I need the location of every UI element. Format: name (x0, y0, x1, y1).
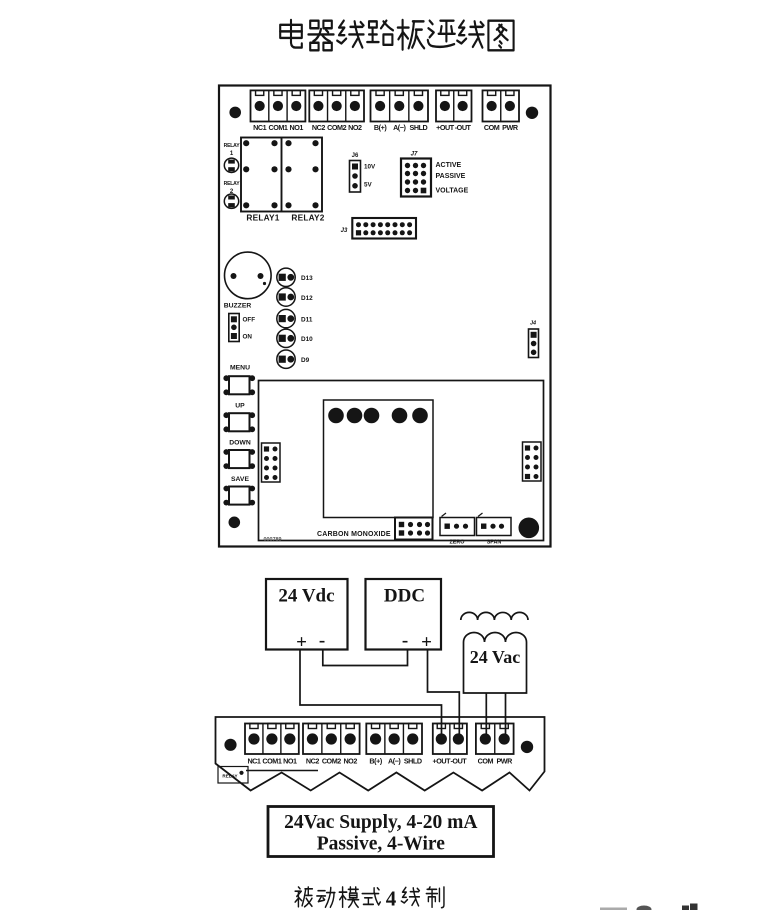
svg-text:24 Vac: 24 Vac (470, 647, 521, 667)
svg-text:-: - (319, 630, 325, 651)
svg-text:+: + (421, 632, 432, 653)
svg-text:A(−): A(−) (388, 757, 401, 766)
svg-text:RELAY: RELAY (222, 774, 237, 779)
svg-text:BUZZER: BUZZER (224, 303, 252, 310)
svg-text:SPAN: SPAN (487, 540, 502, 546)
svg-text:COM2: COM2 (322, 757, 341, 766)
svg-text:SAVE: SAVE (231, 476, 249, 483)
svg-text:RELAY: RELAY (224, 143, 241, 149)
svg-text:NC1: NC1 (247, 757, 260, 766)
svg-text:-OUT: -OUT (450, 757, 467, 766)
svg-text:COM: COM (478, 757, 494, 766)
svg-text:A(−): A(−) (393, 123, 406, 132)
svg-text:CARBON MONOXIDE: CARBON MONOXIDE (317, 531, 391, 538)
svg-text:NO2: NO2 (348, 123, 362, 132)
svg-text:COM1: COM1 (262, 757, 281, 766)
svg-text:1: 1 (230, 151, 234, 157)
svg-text:J3: J3 (341, 228, 348, 234)
svg-text:VOLTAGE: VOLTAGE (436, 188, 469, 195)
svg-text:DDC: DDC (384, 586, 425, 607)
svg-text:D11: D11 (301, 316, 313, 323)
svg-text:+OUT: +OUT (436, 123, 455, 132)
svg-text:PASSIVE: PASSIVE (436, 173, 466, 180)
svg-text:RELAY2: RELAY2 (291, 213, 324, 223)
svg-text:000789: 000789 (264, 537, 282, 543)
svg-text:RELAY1: RELAY1 (246, 213, 279, 223)
svg-text:DOWN: DOWN (229, 440, 251, 447)
svg-text:NC1: NC1 (253, 123, 266, 132)
svg-text:D13: D13 (301, 275, 313, 282)
svg-text:COM: COM (484, 123, 500, 132)
svg-text:Passive, 4-Wire: Passive, 4-Wire (317, 834, 446, 855)
svg-text:B(+): B(+) (369, 757, 382, 766)
svg-text:ON: ON (243, 334, 253, 341)
svg-text:SHLD: SHLD (410, 123, 428, 132)
svg-text:MENU: MENU (230, 365, 250, 372)
svg-text:J4: J4 (530, 321, 536, 327)
svg-text:PWR: PWR (496, 757, 513, 766)
svg-text:NO1: NO1 (290, 123, 304, 132)
svg-text:D9: D9 (301, 357, 310, 364)
svg-text:+: + (296, 632, 307, 653)
svg-text:D12: D12 (301, 295, 313, 302)
svg-text:-: - (402, 630, 408, 651)
svg-text:24Vac Supply, 4-20 mA: 24Vac Supply, 4-20 mA (284, 812, 477, 833)
svg-text:5V: 5V (364, 182, 373, 189)
svg-text:-OUT: -OUT (455, 123, 472, 132)
svg-text:J7: J7 (411, 152, 418, 158)
svg-text:+OUT: +OUT (433, 757, 452, 766)
svg-text:PWR: PWR (502, 123, 519, 132)
svg-text:NO2: NO2 (343, 757, 357, 766)
svg-text:COM1: COM1 (268, 123, 287, 132)
svg-text:ZERO: ZERO (450, 540, 465, 546)
svg-text:UP: UP (235, 403, 245, 410)
svg-text:4: 4 (386, 887, 397, 910)
svg-text:B(+): B(+) (374, 123, 387, 132)
svg-text:NO1: NO1 (283, 757, 297, 766)
svg-text:J6: J6 (352, 153, 359, 159)
svg-text:SHLD: SHLD (404, 757, 422, 766)
svg-text:D10: D10 (301, 336, 313, 343)
svg-text:ACTIVE: ACTIVE (436, 162, 462, 169)
svg-text:10V: 10V (364, 164, 376, 171)
svg-text:24 Vdc: 24 Vdc (278, 586, 334, 607)
svg-text:RELAY: RELAY (224, 181, 241, 187)
svg-text:NC2: NC2 (306, 757, 319, 766)
svg-text:NC2: NC2 (312, 123, 325, 132)
svg-text:OFF: OFF (243, 317, 256, 324)
svg-text:COM2: COM2 (327, 123, 346, 132)
